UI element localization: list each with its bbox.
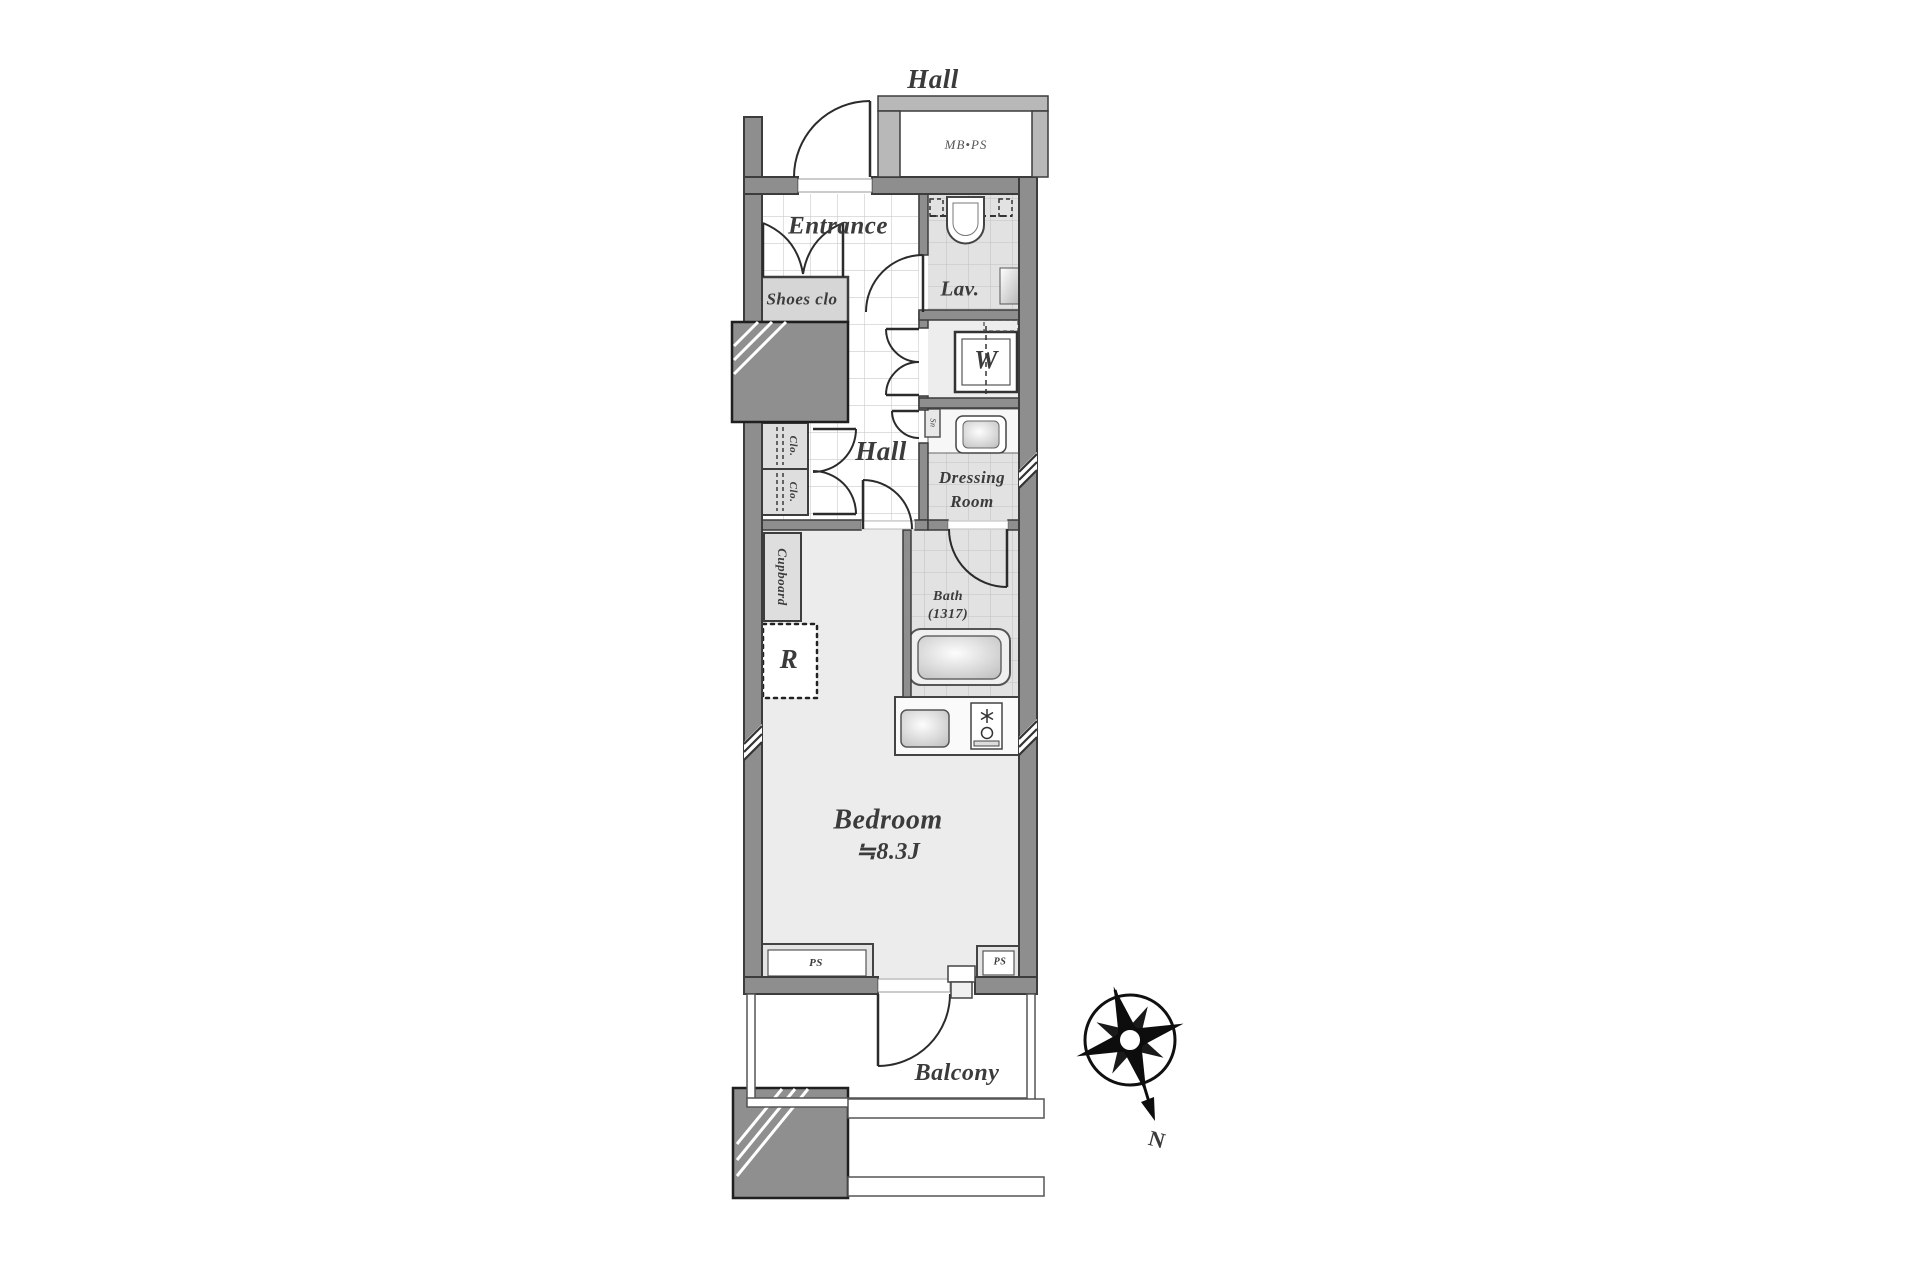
balcony-step bbox=[948, 966, 975, 998]
bathtub bbox=[909, 629, 1010, 685]
refrigerator-label: R bbox=[780, 645, 799, 675]
stove-burner-icon bbox=[971, 703, 1002, 749]
closet-2-box bbox=[760, 469, 808, 515]
bedroom-size-label: ≒8.3J bbox=[856, 839, 921, 865]
dressing-room-label: Dressing Room bbox=[939, 466, 1005, 514]
floor-plan-canvas: Hall MB•PS Entrance Shoes clo Lav. W Sn … bbox=[0, 0, 1920, 1280]
closet-1-label: Clo. bbox=[787, 436, 799, 457]
bedroom-label: Bedroom bbox=[833, 806, 942, 837]
mb-ps-label: MB•PS bbox=[945, 138, 988, 152]
kitchen-counter bbox=[895, 697, 1020, 755]
lower-structure-bars bbox=[848, 1099, 1044, 1196]
ps-left-label: PS bbox=[809, 957, 823, 969]
bath-label: Bath (1317) bbox=[928, 588, 968, 624]
washer-label: W bbox=[974, 347, 998, 376]
lavatory-shelf bbox=[1000, 268, 1020, 304]
floor-plan-drawing bbox=[0, 0, 1920, 1280]
entrance-door bbox=[794, 101, 870, 177]
cupboard-label: Cupboard bbox=[775, 548, 789, 605]
closet-2-label: Clo. bbox=[787, 482, 799, 503]
north-arrow bbox=[1141, 1097, 1155, 1121]
lavatory-label: Lav. bbox=[940, 277, 979, 300]
shaft-block-upper bbox=[732, 322, 848, 422]
hall-inner-label: Hall bbox=[855, 437, 907, 467]
compass-icon bbox=[1077, 986, 1184, 1121]
entrance-label: Entrance bbox=[788, 212, 888, 240]
dressing-sink bbox=[956, 416, 1006, 453]
sn-label: Sn bbox=[928, 419, 937, 428]
hall-outer-label: Hall bbox=[907, 65, 959, 95]
ps-right-label: PS bbox=[994, 957, 1007, 968]
balcony-door bbox=[878, 994, 950, 1066]
balcony-label: Balcony bbox=[915, 1060, 1000, 1086]
closet-1-box bbox=[760, 423, 808, 469]
shoes-closet-label: Shoes clo bbox=[766, 291, 837, 310]
kitchen-sink bbox=[901, 710, 949, 747]
